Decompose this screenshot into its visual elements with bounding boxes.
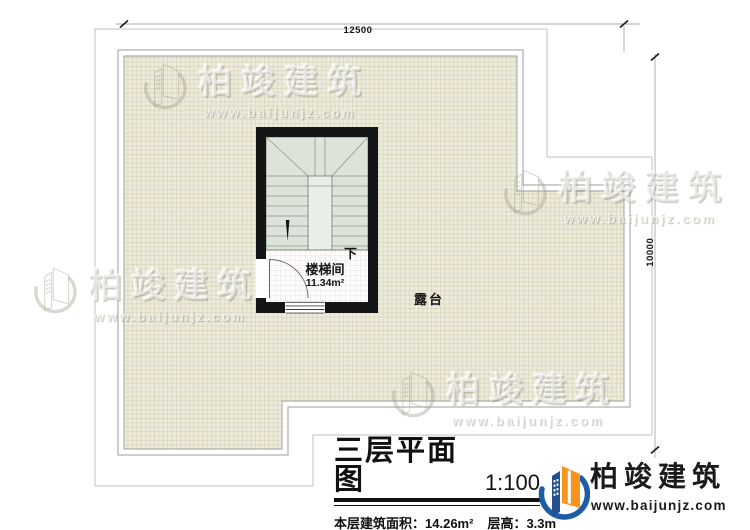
terrace-label: 露台 [414, 293, 444, 307]
floor-height-label: 层高： [487, 516, 526, 530]
window [285, 301, 325, 314]
title-block: 三层平面图 1:100 本层建筑面积：14.26m²层高：3.3m [334, 437, 540, 530]
page-title: 三层平面图 [334, 437, 475, 495]
drawing-scale: 1:100 [485, 472, 540, 495]
dimension-right-label: 10000 [646, 235, 656, 269]
dimension-top-label: 12500 [328, 26, 388, 36]
brand-website: www.baijunjz.com [591, 498, 727, 513]
floorplan-canvas: 柏竣建筑 www.baijunjz.com 柏竣建筑 www.baijunjz.… [0, 0, 750, 530]
stair-well [308, 176, 332, 250]
door-opening [255, 259, 267, 298]
brand-logo-icon [538, 460, 590, 528]
stairwell-area-label: 11.34m² [285, 278, 365, 290]
title-underline-thick [334, 498, 540, 502]
floor-area-value: 14.26m² [425, 516, 473, 530]
floor-info: 本层建筑面积：14.26m²层高：3.3m [334, 513, 540, 530]
stairs [266, 137, 368, 250]
title-underline-thin [334, 505, 540, 506]
brand-name: 柏竣建筑 [590, 462, 726, 493]
floor-area-label: 本层建筑面积： [334, 516, 425, 530]
stair-down-label: 下 [344, 247, 357, 261]
stairwell-label: 楼梯间 [285, 263, 365, 277]
